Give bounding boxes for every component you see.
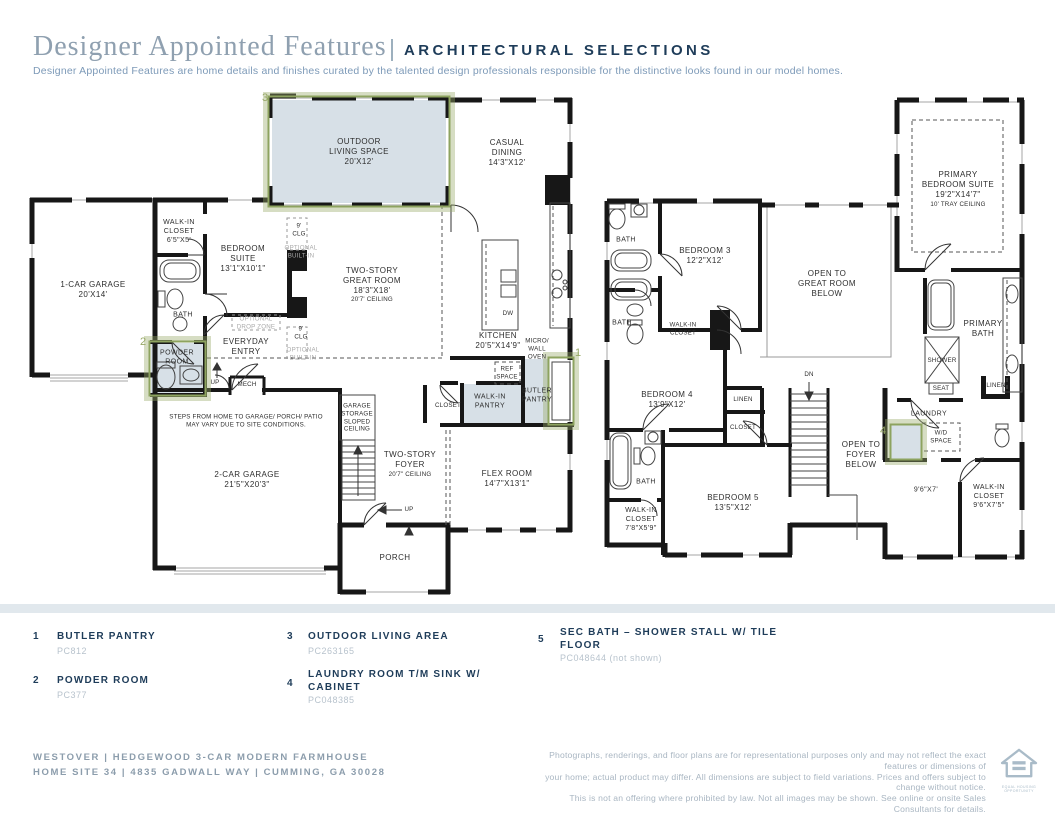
room-label-everyday-entry: EVERYDAY ENTRY	[223, 337, 269, 357]
note-up-stairs: UP	[211, 379, 220, 387]
legend-number: 3	[287, 631, 293, 642]
page-title: Designer Appointed Features	[33, 31, 387, 63]
room-label-bath: BATH	[173, 312, 193, 321]
room-label-garage-storage: GARAGE STORAGE SLOPED CEILING	[341, 403, 373, 434]
note-dn-stairs: DN	[804, 371, 813, 379]
page-subtitle-heading: ARCHITECTURAL SELECTIONS	[404, 42, 714, 59]
note-optional-builtin-top: OPTIONAL BUILT-IN	[285, 244, 318, 260]
note-9-clg-top: 9' CLG	[292, 222, 305, 238]
legend-title-sec-bath: SEC BATH – SHOWER STALL W/ TILE FLOOR	[560, 626, 777, 652]
interior-walls	[607, 201, 1024, 557]
room-label-walkin-closet-c: WALK-IN CLOSET 7'8"X5'9"	[625, 507, 657, 533]
dn-arrow	[805, 382, 813, 400]
room-label-bath-c: BATH	[636, 479, 656, 488]
note-foyer-ceiling: 20'7" CEILING	[389, 471, 432, 479]
room-label-9-6-x-7: 9'6"X7'	[914, 487, 938, 496]
feature-marker-1: 1	[575, 347, 581, 359]
room-label-flex-room: FLEX ROOM 14'7"X13'1"	[482, 469, 533, 489]
legend-number: 2	[33, 675, 39, 686]
note-tray-ceiling: 10' TRAY CEILING	[930, 201, 985, 209]
room-label-1-car-garage: 1-CAR GARAGE 20'X14'	[60, 280, 125, 300]
feature-marker-2: 2	[140, 336, 146, 348]
room-label-great-room: TWO-STORY GREAT ROOM 18'3"X18'	[343, 266, 401, 296]
room-label-linen-a: LINEN	[733, 396, 752, 404]
room-label-mech: MECH	[237, 381, 256, 389]
floor-plan-first: OUTDOOR LIVING SPACE 20'X12' CASUAL DINI…	[10, 92, 585, 602]
note-up-foyer: UP	[405, 506, 414, 514]
fireplace-notch	[292, 271, 309, 297]
legend-number: 1	[33, 631, 39, 642]
room-label-walkin-closet-small: WALK-IN CLOSET	[670, 321, 697, 337]
room-label-butler-pantry: BUTLER PANTRY	[522, 387, 552, 405]
linen-wall-c	[981, 394, 1010, 399]
legend-code: PC048385	[308, 695, 355, 705]
room-label-kitchen: KITCHEN 20'5"X14'9"	[475, 331, 520, 351]
room-label-open-to-great-room: OPEN TO GREAT ROOM BELOW	[798, 269, 856, 299]
legend-code: PC048644 (not shown)	[560, 653, 662, 663]
room-label-walkin-closet: WALK-IN CLOSET 6'5"X5'	[163, 219, 195, 245]
room-label-bath-a: BATH	[616, 237, 636, 246]
room-label-outdoor-living: OUTDOOR LIVING SPACE 20'X12'	[329, 137, 389, 167]
room-label-linen-b: LINEN	[986, 382, 1005, 390]
room-label-2-car-garage: 2-CAR GARAGE 21'5"X20'3"	[214, 470, 279, 490]
legend-code: PC812	[57, 646, 87, 656]
header-divider	[391, 39, 393, 61]
feature-marker-4: 4	[880, 425, 886, 437]
footer-disclaimer: Photographs, renderings, and floor plans…	[520, 750, 986, 815]
room-label-open-to-foyer: OPEN TO FOYER BELOW	[842, 440, 881, 470]
note-dw: DW	[503, 310, 514, 318]
room-label-porch: PORCH	[380, 553, 411, 563]
legend-number: 5	[538, 634, 544, 645]
room-label-closet2: CLOSET	[730, 424, 756, 432]
feature-marker-3: 3	[262, 92, 268, 104]
legend-title-outdoor-living: OUTDOOR LIVING AREA	[308, 630, 449, 643]
note-micro-wall-oven: MICRO/ WALL OVEN	[525, 337, 549, 360]
room-label-bedroom-suite: BEDROOM SUITE 13'1"X10'1"	[220, 244, 265, 274]
equal-housing-logo: EQUAL HOUSING OPPORTUNITY	[998, 748, 1040, 793]
room-label-primary-suite: PRIMARY BEDROOM SUITE 19'2"X14'7"	[922, 170, 994, 200]
room-label-laundry: LAUNDRY	[911, 411, 947, 420]
legend-title-butler-pantry: BUTLER PANTRY	[57, 630, 156, 643]
legend-title-laundry-sink: LAUNDRY ROOM T/M SINK W/ CABINET	[308, 668, 481, 694]
room-label-closet: CLOSET	[435, 402, 461, 410]
kitchen-wall-chunk	[545, 175, 570, 205]
room-label-powder-room: POWDER ROOM	[160, 349, 194, 367]
room-label-bedroom5: BEDROOM 5 13'5"X12'	[707, 493, 759, 513]
floor-plan-second: BATH BEDROOM 3 12'2"X12' BATH WALK-IN CL…	[595, 92, 1055, 572]
room-label-bath-b: BATH	[612, 320, 632, 329]
room-label-bedroom4: BEDROOM 4 13'9"X12'	[641, 390, 693, 410]
equal-housing-caption: EQUAL HOUSING OPPORTUNITY	[998, 785, 1040, 793]
room-label-walkin-closet-b: WALK-IN CLOSET 9'6"X7'5"	[973, 484, 1005, 510]
legend-title-powder-room: POWDER ROOM	[57, 674, 149, 687]
highlight-boxes	[888, 422, 924, 462]
note-optional-builtin-bottom: OPTIONAL BUILT-IN	[287, 346, 320, 362]
legend-code: PC377	[57, 690, 87, 700]
equal-housing-house-icon	[999, 748, 1039, 780]
note-shower: SHOWER	[927, 357, 956, 365]
note-great-room-ceiling: 20'7' CEILING	[351, 296, 393, 304]
room-label-walkin-pantry: WALK-IN PANTRY	[474, 393, 506, 411]
legend-number: 4	[287, 678, 293, 689]
room-label-casual-dining: CASUAL DINING 14'3"X12'	[488, 138, 525, 168]
legend-code: PC263165	[308, 646, 355, 656]
flyer-page: Designer Appointed Features ARCHITECTURA…	[0, 0, 1055, 815]
note-ref-space: REF SPACE	[496, 365, 518, 381]
footer-address: WESTOVER | HEDGEWOOD 3-CAR MODERN FARMHO…	[33, 750, 385, 780]
divider-band	[0, 604, 1055, 613]
room-label-primary-bath: PRIMARY BATH	[963, 319, 1002, 339]
note-optional-drop-zone: OPTIONAL DROP ZONE	[237, 315, 275, 331]
note-seat: SEAT	[933, 385, 950, 393]
note-9-clg-bottom: 9' CLG	[294, 325, 307, 341]
page-description: Designer Appointed Features are home det…	[33, 65, 843, 77]
room-label-bedroom3: BEDROOM 3 12'2"X12'	[679, 246, 731, 266]
note-wd-space: W/D SPACE	[930, 429, 952, 445]
note-steps-disclaimer: STEPS FROM HOME TO GARAGE/ PORCH/ PATIO …	[169, 413, 322, 429]
fixtures	[157, 203, 570, 500]
room-label-foyer: TWO-STORY FOYER	[384, 450, 436, 470]
